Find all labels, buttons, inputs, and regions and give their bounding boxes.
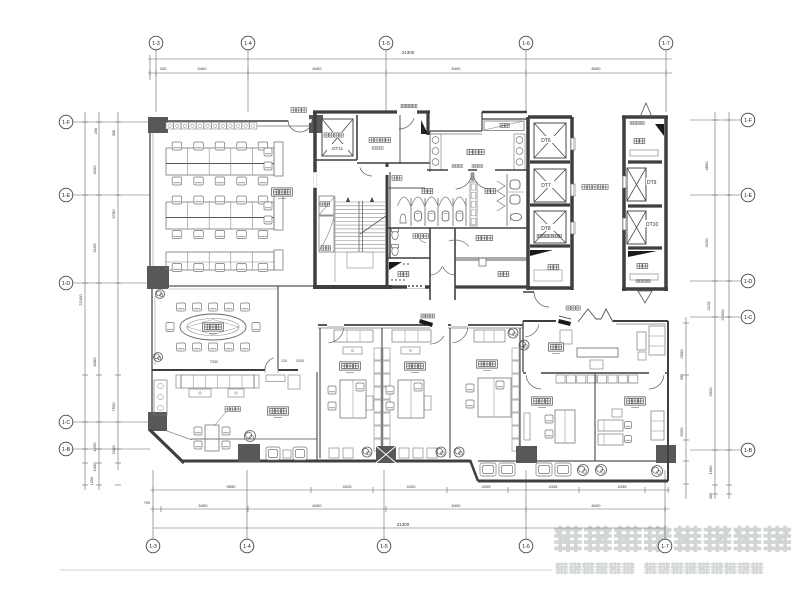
svg-text:1-C: 1-C <box>62 420 71 426</box>
svg-text:4025: 4025 <box>343 484 353 489</box>
svg-text:1-D: 1-D <box>62 281 71 287</box>
svg-text:8400: 8400 <box>452 66 462 71</box>
svg-text:4335: 4335 <box>549 484 559 489</box>
svg-text:1-B: 1-B <box>62 447 71 453</box>
svg-text:4200: 4200 <box>407 484 417 489</box>
svg-text:1-7: 1-7 <box>662 41 670 47</box>
svg-text:1-5: 1-5 <box>382 41 390 47</box>
svg-text:2128: 2128 <box>706 301 711 311</box>
svg-text:1-4: 1-4 <box>243 544 251 550</box>
svg-text:4150: 4150 <box>92 165 97 175</box>
svg-text:2920: 2920 <box>708 387 713 397</box>
svg-text:700: 700 <box>144 501 150 505</box>
svg-text:DT9: DT9 <box>647 180 657 186</box>
svg-text:21300: 21300 <box>397 522 410 527</box>
svg-text:1-F: 1-F <box>62 120 70 126</box>
svg-text:DT7: DT7 <box>541 183 551 189</box>
svg-text:1950: 1950 <box>708 465 713 475</box>
svg-text:22100: 22100 <box>78 294 83 306</box>
svg-text:5150: 5150 <box>92 243 97 253</box>
svg-text:4335: 4335 <box>618 484 628 489</box>
svg-text:9780: 9780 <box>111 209 116 219</box>
svg-text:8400: 8400 <box>313 503 323 508</box>
svg-text:4205: 4205 <box>482 484 492 489</box>
svg-text:DT6: DT6 <box>541 138 551 144</box>
svg-text:2000: 2000 <box>296 359 304 363</box>
svg-text:1-6: 1-6 <box>522 544 530 550</box>
svg-text:4850: 4850 <box>704 161 709 171</box>
svg-text:8400: 8400 <box>592 503 602 508</box>
svg-text:1-D: 1-D <box>744 279 753 285</box>
svg-text:6250: 6250 <box>679 427 684 437</box>
svg-text:3150: 3150 <box>704 238 709 248</box>
svg-text:5400: 5400 <box>199 503 209 508</box>
svg-text:.DT11: .DT11 <box>331 146 343 151</box>
svg-text:8400: 8400 <box>452 503 462 508</box>
svg-text:1250: 1250 <box>90 477 94 485</box>
svg-text:1-5: 1-5 <box>380 544 388 550</box>
svg-text:1-3: 1-3 <box>149 544 157 550</box>
svg-text:1200: 1200 <box>92 442 97 452</box>
svg-text:1-4: 1-4 <box>244 41 252 47</box>
svg-text:200: 200 <box>94 128 98 134</box>
svg-text:350: 350 <box>112 130 116 136</box>
svg-text:1-3: 1-3 <box>152 41 160 47</box>
svg-text:9650: 9650 <box>227 484 237 489</box>
svg-text:2000: 2000 <box>111 445 116 455</box>
svg-text:1-F: 1-F <box>744 118 752 124</box>
svg-text:8400: 8400 <box>313 66 323 71</box>
svg-text:1-6: 1-6 <box>522 41 530 47</box>
svg-text:21300: 21300 <box>402 50 415 55</box>
svg-text:8400: 8400 <box>92 357 97 367</box>
svg-text:1-B: 1-B <box>744 448 753 454</box>
svg-text:200: 200 <box>160 66 167 71</box>
svg-text:DT10: DT10 <box>646 222 658 228</box>
svg-text:DT8: DT8 <box>541 226 551 232</box>
svg-text:8400: 8400 <box>592 66 602 71</box>
svg-text:7530: 7530 <box>210 360 218 364</box>
svg-text:21900: 21900 <box>720 309 725 321</box>
svg-text:5400: 5400 <box>198 66 208 71</box>
svg-text:1-C: 1-C <box>744 315 753 321</box>
svg-text:1-E: 1-E <box>62 193 71 199</box>
svg-text:120: 120 <box>281 359 287 363</box>
svg-text:2600: 2600 <box>679 349 684 359</box>
svg-text:7500: 7500 <box>111 402 116 412</box>
svg-text:1-E: 1-E <box>744 193 753 199</box>
svg-text:1-7: 1-7 <box>661 544 669 550</box>
